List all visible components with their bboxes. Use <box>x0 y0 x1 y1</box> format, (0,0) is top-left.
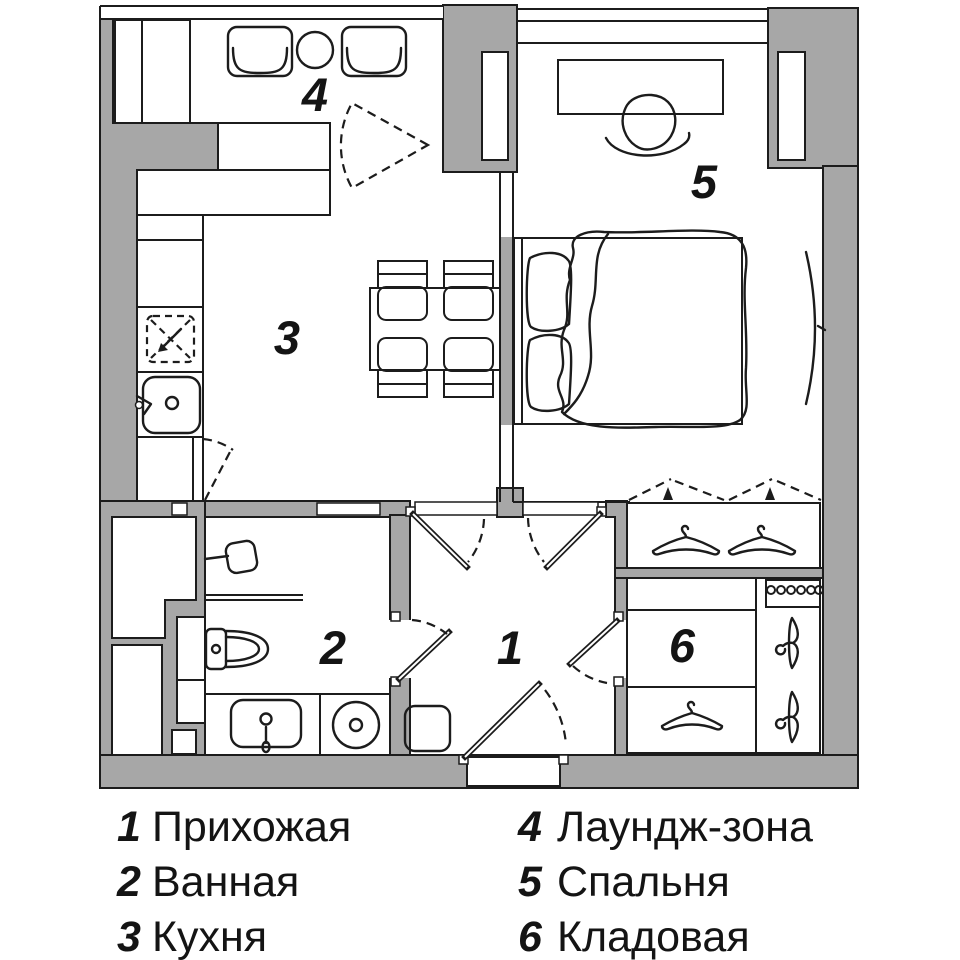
shower-head <box>205 540 258 575</box>
wall <box>615 568 823 578</box>
wall <box>443 5 517 172</box>
legend-name: Кухня <box>152 913 267 960</box>
bedroom-window <box>517 9 768 43</box>
door-hinge <box>614 677 623 686</box>
floor-plan: 4 <box>0 0 960 960</box>
duct-shaft <box>112 645 162 755</box>
door-swing-arc <box>203 439 233 500</box>
door-hinge <box>559 755 568 764</box>
door-swing-arc <box>341 103 428 188</box>
legend-num: 1 <box>117 803 141 851</box>
legend-num: 5 <box>518 858 543 906</box>
bathroom-cabinet <box>177 617 205 723</box>
kitchen-counter <box>137 240 203 307</box>
pillow <box>527 253 571 331</box>
legend-name: Лаундж-зона <box>557 803 813 851</box>
entrance-door-leaf <box>465 684 539 757</box>
pouf <box>405 706 450 751</box>
door-swing-arc <box>573 666 607 683</box>
windows <box>100 6 768 43</box>
room-bathroom: 2 <box>205 540 390 755</box>
desk <box>558 60 723 114</box>
legend-name: Кладовая <box>557 913 750 960</box>
room-label-5: 5 <box>691 155 718 208</box>
room-label-1: 1 <box>497 621 523 674</box>
room-label-2: 2 <box>319 621 346 674</box>
duct-shaft <box>172 730 196 754</box>
chair <box>444 338 493 397</box>
room-kitchen: 3 <box>136 123 501 501</box>
room-storage: 6 <box>627 578 823 753</box>
door-swing-arc <box>412 620 447 634</box>
door-leaf <box>547 514 600 567</box>
wall-opening <box>172 503 187 515</box>
legend-name: Прихожая <box>152 803 351 851</box>
toilet <box>206 629 268 669</box>
legend-name: Спальня <box>557 858 730 906</box>
kitchen-counter <box>137 215 203 240</box>
legend: 1 Прихожая 2 Ванная 3 Кухня 4 Лаундж-зон… <box>116 803 813 960</box>
legend-num: 6 <box>518 913 543 960</box>
entrance-doorway <box>467 757 560 786</box>
wall <box>768 8 858 168</box>
wardrobe <box>627 503 820 568</box>
legend-num: 2 <box>116 858 141 906</box>
armchair <box>228 27 292 76</box>
room-hallway: 1 <box>391 507 623 764</box>
round-table <box>297 32 333 68</box>
kitchen-sink <box>136 377 201 433</box>
blanket <box>558 231 747 428</box>
legend-name: Ванная <box>152 858 299 906</box>
door-swing-arc <box>545 690 566 744</box>
door-leaf <box>413 514 467 567</box>
chair <box>444 261 493 320</box>
door-hinge <box>391 612 400 621</box>
cabinet <box>113 20 190 123</box>
pillow <box>527 335 571 411</box>
legend-num: 3 <box>117 913 141 960</box>
dining-table-set <box>370 261 500 397</box>
kitchen-counter <box>218 123 330 170</box>
doorway <box>317 503 380 515</box>
room-label-6: 6 <box>669 619 696 672</box>
wall <box>501 237 512 425</box>
window <box>100 6 443 19</box>
chair <box>378 338 427 397</box>
door-leaf <box>570 621 617 664</box>
folding-doors <box>629 479 821 500</box>
doorway <box>415 502 497 515</box>
shower-glass <box>205 595 303 600</box>
kitchen-counter <box>137 170 330 215</box>
wall <box>100 13 218 501</box>
legend-num: 4 <box>517 803 542 851</box>
armchair <box>342 27 406 76</box>
chair <box>378 261 427 320</box>
doorway <box>523 502 598 515</box>
wall <box>823 166 858 788</box>
bed <box>514 231 747 428</box>
washing-machine <box>333 702 379 748</box>
room-label-4: 4 <box>301 68 328 121</box>
room-label-3: 3 <box>274 311 300 364</box>
desk-chair <box>606 95 689 156</box>
dining-table <box>370 288 500 370</box>
door-swing-arc <box>468 519 484 562</box>
door-swing-arc <box>528 518 544 562</box>
bathroom-sink <box>231 700 301 752</box>
stove-icon <box>147 316 194 362</box>
